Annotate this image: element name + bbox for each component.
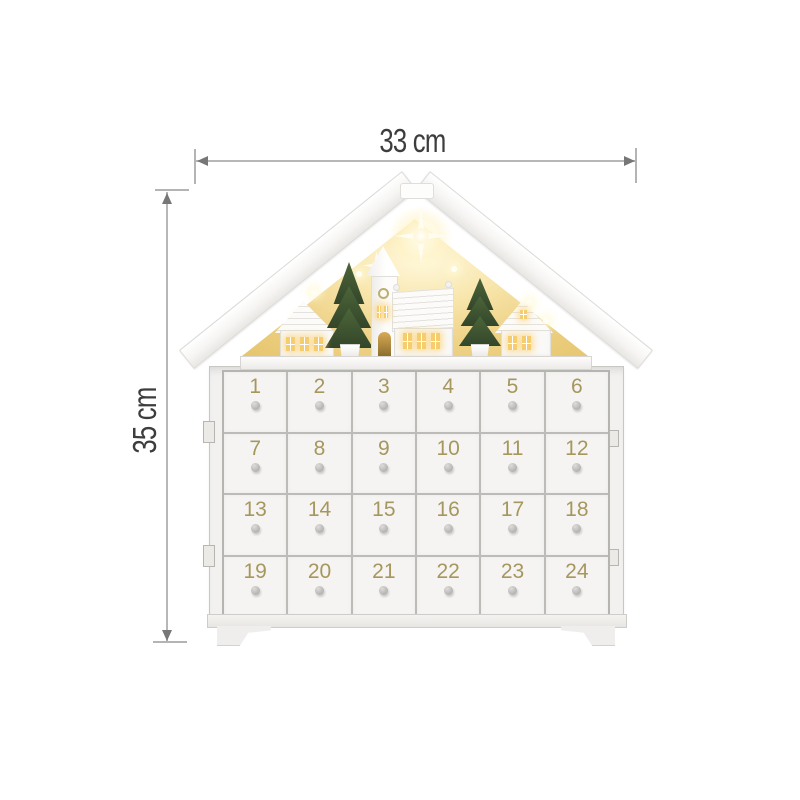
drawer-number: 16 [436, 499, 459, 521]
drawer-knob-icon [444, 524, 453, 533]
drawer-knob-icon [251, 586, 260, 595]
drawer-13: 13 [224, 495, 286, 555]
product-photo-advent-calendar: 33 cm 35 cm [0, 0, 800, 800]
drawer-knob-icon [444, 401, 453, 410]
lit-window [300, 337, 309, 351]
drawer-1: 1 [224, 372, 286, 432]
drawer-knob-icon [251, 401, 260, 410]
roof-finial [393, 284, 400, 291]
height-dimension-tick-top [155, 189, 189, 191]
drawer-number: 10 [436, 438, 459, 460]
drawer-24: 24 [546, 557, 608, 617]
side-latch [609, 549, 619, 566]
drawer-number: 4 [442, 376, 454, 398]
height-dimension-text: 35 cm [126, 388, 164, 454]
drawer-knob-icon [379, 524, 388, 533]
drawer-knob-icon [508, 401, 517, 410]
drawer-number: 3 [378, 376, 390, 398]
lit-window [522, 336, 531, 350]
drawer-3: 3 [353, 372, 415, 432]
drawer-number: 21 [372, 561, 395, 583]
width-dimension-tick-left [194, 149, 196, 184]
arrow-up-icon [162, 193, 172, 204]
drawer-grid: 123456789101112131415161718192021222324 [222, 370, 610, 618]
led-light-icon [543, 318, 549, 324]
drawer-knob-icon [315, 586, 324, 595]
drawer-knob-icon [572, 401, 581, 410]
bracket-foot-right [561, 626, 615, 646]
drawer-number: 6 [571, 376, 583, 398]
base-rail [207, 614, 627, 628]
drawer-knob-icon [572, 586, 581, 595]
drawer-knob-icon [251, 463, 260, 472]
drawer-16: 16 [417, 495, 479, 555]
drawer-knob-icon [508, 463, 517, 472]
side-latch [203, 545, 215, 567]
drawer-7: 7 [224, 434, 286, 494]
lit-window [403, 333, 412, 349]
drawer-8: 8 [288, 434, 350, 494]
arrow-down-icon [162, 630, 172, 641]
arrow-left-icon [197, 156, 208, 166]
lit-window [417, 333, 426, 349]
drawer-number: 2 [314, 376, 326, 398]
drawer-17: 17 [481, 495, 543, 555]
drawer-number: 17 [501, 499, 524, 521]
drawer-number: 15 [372, 499, 395, 521]
clock-icon [378, 288, 389, 299]
drawer-knob-icon [572, 524, 581, 533]
drawer-10: 10 [417, 434, 479, 494]
drawer-knob-icon [315, 524, 324, 533]
drawer-number: 7 [249, 438, 261, 460]
scene-shelf [240, 356, 592, 370]
drawer-23: 23 [481, 557, 543, 617]
side-latch [609, 430, 619, 447]
led-light-icon [451, 266, 457, 272]
drawer-knob-icon [508, 586, 517, 595]
drawer-number: 1 [249, 376, 261, 398]
width-dimension-label: 33 cm [352, 122, 472, 160]
lit-window [377, 306, 381, 318]
height-dimension-line [166, 192, 168, 642]
lit-window [286, 337, 295, 351]
star-light-icon [413, 228, 429, 244]
christmas-tree-icon [459, 278, 501, 346]
lit-window [431, 333, 440, 349]
drawer-number: 11 [502, 438, 524, 460]
drawer-14: 14 [288, 495, 350, 555]
drawer-number: 23 [501, 561, 524, 583]
christmas-tree-icon [325, 262, 373, 348]
drawer-12: 12 [546, 434, 608, 494]
drawer-6: 6 [546, 372, 608, 432]
width-dimension-tick-right [635, 148, 637, 183]
led-light-icon [526, 300, 532, 306]
drawer-number: 5 [507, 376, 519, 398]
drawer-number: 14 [308, 499, 331, 521]
drawer-knob-icon [444, 586, 453, 595]
arrow-right-icon [624, 156, 635, 166]
drawer-knob-icon [315, 463, 324, 472]
drawer-knob-icon [379, 586, 388, 595]
drawer-number: 19 [243, 561, 266, 583]
drawer-knob-icon [508, 524, 517, 533]
roof-finial [445, 281, 452, 288]
led-light-icon [311, 289, 317, 295]
church-door [378, 332, 391, 356]
drawer-number: 9 [378, 438, 390, 460]
drawer-knob-icon [315, 401, 324, 410]
roof-ridge-cap [400, 183, 434, 199]
drawer-number: 12 [565, 438, 588, 460]
church-nave-roof [392, 288, 454, 332]
drawer-number: 13 [243, 499, 266, 521]
drawer-knob-icon [379, 401, 388, 410]
drawer-2: 2 [288, 372, 350, 432]
drawer-4: 4 [417, 372, 479, 432]
drawer-knob-icon [251, 524, 260, 533]
drawer-number: 24 [565, 561, 588, 583]
drawer-number: 22 [436, 561, 459, 583]
drawer-knob-icon [379, 463, 388, 472]
drawer-number: 20 [308, 561, 331, 583]
lit-window [314, 337, 323, 351]
drawer-19: 19 [224, 557, 286, 617]
drawer-18: 18 [546, 495, 608, 555]
bracket-foot-left [217, 626, 271, 646]
drawer-number: 18 [565, 499, 588, 521]
drawer-22: 22 [417, 557, 479, 617]
lit-window [384, 306, 388, 318]
drawer-5: 5 [481, 372, 543, 432]
height-dimension-tick-bottom [153, 641, 187, 643]
side-latch [203, 421, 215, 443]
drawer-15: 15 [353, 495, 415, 555]
drawer-21: 21 [353, 557, 415, 617]
height-dimension-label: 35 cm [126, 371, 164, 471]
width-dimension-text: 33 cm [379, 122, 445, 160]
drawer-20: 20 [288, 557, 350, 617]
drawer-knob-icon [444, 463, 453, 472]
drawer-knob-icon [572, 463, 581, 472]
width-dimension-line [196, 160, 636, 162]
drawer-9: 9 [353, 434, 415, 494]
tree-tier [325, 308, 373, 348]
lit-window [520, 310, 527, 319]
drawer-11: 11 [481, 434, 543, 494]
lit-window [508, 336, 517, 350]
drawer-number: 8 [314, 438, 326, 460]
